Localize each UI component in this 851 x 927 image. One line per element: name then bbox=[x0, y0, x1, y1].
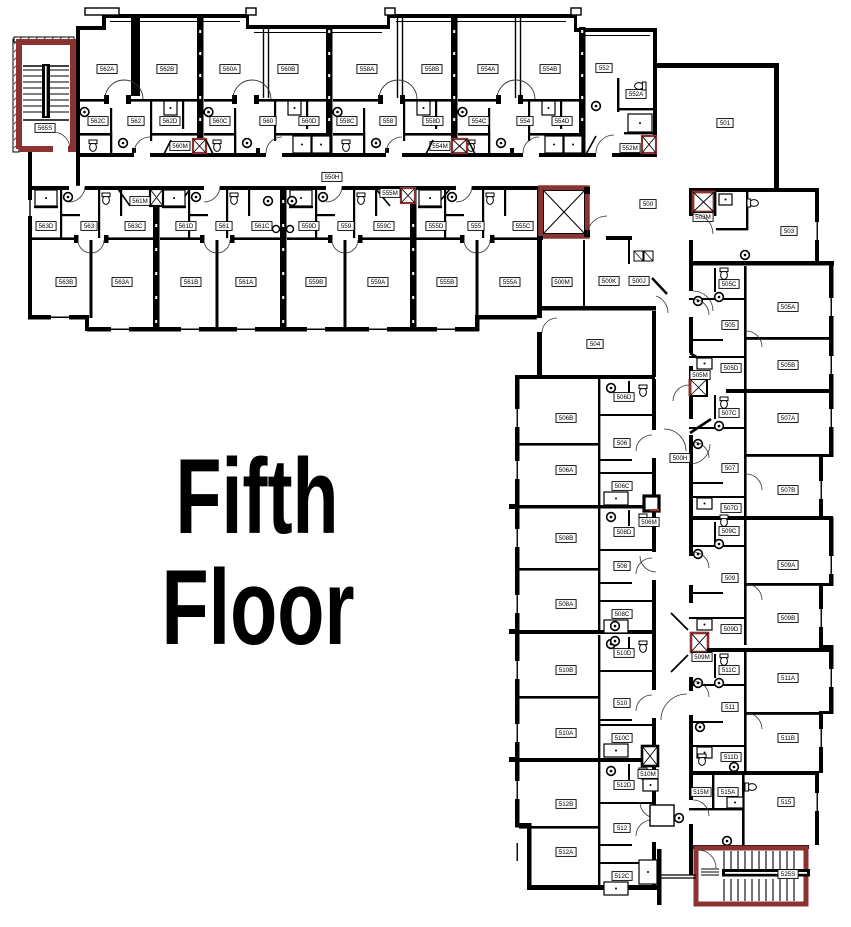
svg-text:503M: 503M bbox=[695, 214, 710, 221]
svg-text:511: 511 bbox=[725, 704, 735, 711]
svg-text:515M: 515M bbox=[693, 789, 708, 796]
svg-text:506M: 506M bbox=[641, 519, 656, 526]
svg-text:500: 500 bbox=[643, 201, 654, 208]
svg-text:503: 503 bbox=[784, 228, 795, 235]
svg-text:554A: 554A bbox=[481, 66, 496, 73]
svg-text:561M: 561M bbox=[132, 198, 147, 205]
svg-text:555C: 555C bbox=[516, 223, 531, 230]
svg-text:508B: 508B bbox=[559, 535, 573, 542]
svg-text:565S: 565S bbox=[38, 125, 52, 132]
svg-text:560M: 560M bbox=[172, 143, 187, 150]
svg-text:554C: 554C bbox=[472, 118, 487, 125]
svg-text:501: 501 bbox=[720, 120, 731, 127]
svg-text:512B: 512B bbox=[559, 801, 573, 808]
svg-text:509B: 509B bbox=[781, 615, 795, 622]
svg-text:555M: 555M bbox=[382, 190, 397, 197]
svg-text:509: 509 bbox=[725, 575, 736, 582]
svg-text:558: 558 bbox=[383, 118, 394, 125]
svg-text:560D: 560D bbox=[302, 118, 317, 125]
svg-text:506D: 506D bbox=[617, 394, 632, 401]
svg-text:508: 508 bbox=[617, 563, 628, 570]
svg-text:562C: 562C bbox=[91, 118, 106, 125]
svg-text:510A: 510A bbox=[559, 730, 574, 737]
svg-text:512D: 512D bbox=[617, 782, 632, 789]
svg-text:560: 560 bbox=[263, 118, 274, 125]
svg-text:562A: 562A bbox=[100, 66, 115, 73]
svg-text:506: 506 bbox=[617, 440, 628, 447]
svg-text:559: 559 bbox=[341, 223, 352, 230]
svg-text:563A: 563A bbox=[115, 279, 130, 286]
svg-text:559B: 559B bbox=[309, 279, 323, 286]
svg-text:504: 504 bbox=[590, 341, 601, 348]
svg-text:552A: 552A bbox=[629, 91, 644, 98]
svg-text:562B: 562B bbox=[160, 66, 174, 73]
svg-text:510C: 510C bbox=[615, 735, 630, 742]
svg-text:510D: 510D bbox=[617, 650, 632, 657]
svg-text:507: 507 bbox=[725, 465, 736, 472]
svg-text:512: 512 bbox=[617, 825, 628, 832]
svg-text:510M: 510M bbox=[640, 771, 655, 778]
svg-text:505: 505 bbox=[725, 322, 736, 329]
svg-text:560C: 560C bbox=[213, 118, 228, 125]
svg-text:563B: 563B bbox=[59, 279, 73, 286]
svg-text:561B: 561B bbox=[184, 279, 198, 286]
svg-text:508A: 508A bbox=[559, 601, 574, 608]
svg-text:558D: 558D bbox=[426, 118, 441, 125]
svg-text:563D: 563D bbox=[39, 223, 54, 230]
svg-text:507C: 507C bbox=[722, 410, 737, 417]
svg-text:505M: 505M bbox=[692, 372, 707, 379]
svg-text:510: 510 bbox=[617, 700, 628, 707]
svg-text:511A: 511A bbox=[781, 675, 796, 682]
svg-text:559C: 559C bbox=[377, 223, 392, 230]
svg-text:505D: 505D bbox=[724, 365, 739, 372]
svg-text:500M: 500M bbox=[554, 279, 569, 286]
svg-text:559D: 559D bbox=[302, 223, 317, 230]
svg-text:554D: 554D bbox=[555, 118, 570, 125]
svg-text:554M: 554M bbox=[432, 143, 447, 150]
svg-text:561: 561 bbox=[219, 223, 230, 230]
svg-text:511C: 511C bbox=[722, 667, 737, 674]
svg-text:508C: 508C bbox=[615, 611, 630, 618]
svg-text:507A: 507A bbox=[781, 415, 796, 422]
svg-text:555D: 555D bbox=[429, 223, 444, 230]
svg-text:558A: 558A bbox=[360, 66, 375, 73]
svg-text:563C: 563C bbox=[128, 223, 143, 230]
svg-text:525S: 525S bbox=[781, 871, 795, 878]
svg-text:505C: 505C bbox=[722, 281, 737, 288]
svg-text:506B: 506B bbox=[559, 415, 573, 422]
svg-text:515A: 515A bbox=[721, 789, 736, 796]
svg-text:515: 515 bbox=[781, 799, 792, 806]
svg-text:560B: 560B bbox=[281, 66, 295, 73]
svg-text:507B: 507B bbox=[781, 487, 795, 494]
svg-text:509D: 509D bbox=[724, 626, 739, 633]
svg-text:511B: 511B bbox=[781, 735, 795, 742]
svg-text:512A: 512A bbox=[559, 849, 574, 856]
svg-text:558B: 558B bbox=[425, 66, 439, 73]
svg-text:505A: 505A bbox=[781, 304, 796, 311]
svg-text:560A: 560A bbox=[223, 66, 238, 73]
svg-text:552: 552 bbox=[599, 65, 610, 72]
svg-text:563: 563 bbox=[84, 223, 95, 230]
svg-text:510B: 510B bbox=[559, 667, 573, 674]
svg-text:558C: 558C bbox=[340, 118, 355, 125]
svg-text:Floor: Floor bbox=[162, 547, 355, 667]
svg-text:562: 562 bbox=[131, 118, 142, 125]
svg-text:509A: 509A bbox=[781, 562, 796, 569]
svg-text:Fifth: Fifth bbox=[176, 436, 339, 556]
svg-text:554: 554 bbox=[520, 118, 531, 125]
svg-text:507D: 507D bbox=[724, 505, 739, 512]
svg-text:511D: 511D bbox=[724, 754, 739, 761]
svg-text:509M: 509M bbox=[694, 654, 709, 661]
svg-text:555B: 555B bbox=[440, 279, 454, 286]
svg-text:561C: 561C bbox=[255, 223, 270, 230]
svg-text:561D: 561D bbox=[179, 223, 194, 230]
svg-text:500K: 500K bbox=[602, 278, 617, 285]
svg-text:555: 555 bbox=[471, 223, 482, 230]
svg-text:552M: 552M bbox=[622, 145, 637, 152]
svg-text:506A: 506A bbox=[559, 467, 574, 474]
svg-text:512C: 512C bbox=[615, 873, 630, 880]
svg-text:559A: 559A bbox=[371, 279, 386, 286]
svg-text:561A: 561A bbox=[239, 279, 254, 286]
svg-text:508D: 508D bbox=[617, 529, 632, 536]
svg-text:555A: 555A bbox=[503, 279, 518, 286]
svg-text:554B: 554B bbox=[543, 66, 557, 73]
svg-text:550H: 550H bbox=[325, 174, 340, 181]
svg-text:562D: 562D bbox=[163, 118, 178, 125]
svg-text:506C: 506C bbox=[615, 483, 630, 490]
svg-text:500J: 500J bbox=[632, 278, 645, 285]
svg-text:509C: 509C bbox=[722, 528, 737, 535]
svg-text:505B: 505B bbox=[781, 362, 795, 369]
svg-text:500H: 500H bbox=[673, 455, 688, 462]
